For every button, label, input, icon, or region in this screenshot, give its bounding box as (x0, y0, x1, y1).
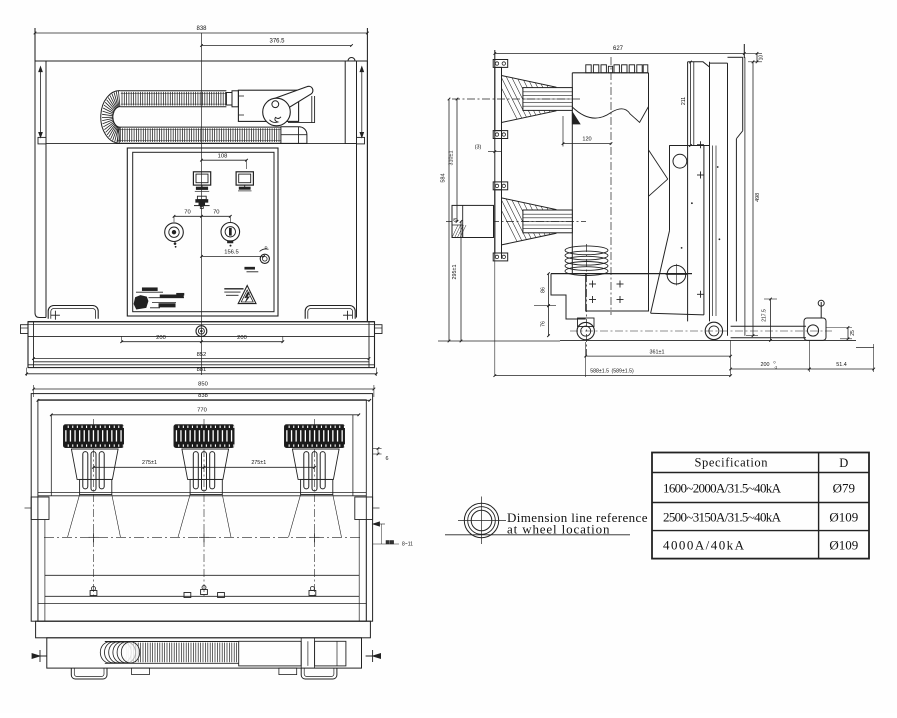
svg-text:120: 120 (582, 137, 591, 143)
svg-text:4000A/40kA: 4000A/40kA (663, 537, 745, 552)
svg-text:275±1: 275±1 (142, 460, 157, 466)
svg-text:6: 6 (386, 456, 389, 462)
svg-text:881: 881 (197, 367, 207, 373)
svg-text:770: 770 (197, 408, 207, 414)
svg-text:156.5: 156.5 (224, 249, 239, 255)
svg-text:51.4: 51.4 (836, 362, 847, 368)
svg-text:588±1.5 (589±1.5): 588±1.5 (589±1.5) (590, 368, 634, 374)
svg-text:8~11: 8~11 (402, 541, 413, 547)
svg-text:76: 76 (540, 321, 546, 327)
svg-text:86: 86 (540, 287, 546, 293)
svg-text:211: 211 (681, 97, 687, 105)
svg-text:200: 200 (761, 362, 770, 368)
svg-text:1600~2000A/31.5~40kA: 1600~2000A/31.5~40kA (663, 480, 782, 495)
svg-text:D: D (839, 456, 848, 470)
svg-text:Specification: Specification (695, 456, 769, 470)
svg-text:108: 108 (218, 154, 228, 160)
svg-text:Ø79: Ø79 (833, 480, 855, 495)
svg-text:852: 852 (197, 352, 207, 358)
svg-text:P: P (264, 246, 267, 251)
svg-text:(3): (3) (475, 144, 482, 150)
svg-text:217.5: 217.5 (761, 309, 767, 322)
svg-text:Ø109: Ø109 (829, 509, 858, 524)
svg-text:627: 627 (613, 46, 624, 52)
svg-text:584: 584 (441, 173, 447, 182)
svg-text:70: 70 (213, 209, 219, 215)
svg-text:25: 25 (850, 330, 856, 336)
svg-text:2500~3150A/31.5~40kA: 2500~3150A/31.5~40kA (663, 509, 782, 524)
svg-text:0: 0 (774, 361, 776, 365)
svg-text:361±1: 361±1 (650, 349, 665, 355)
svg-text:at wheel location: at wheel location (507, 522, 610, 537)
svg-text:Ø109: Ø109 (829, 537, 858, 552)
svg-text:200: 200 (237, 335, 247, 341)
svg-text:200: 200 (156, 335, 166, 341)
svg-text:295±1: 295±1 (452, 265, 458, 280)
svg-text:376.5: 376.5 (269, 39, 285, 45)
svg-text:-3: -3 (774, 366, 777, 370)
svg-text:70: 70 (184, 209, 190, 215)
svg-text:850: 850 (198, 382, 208, 388)
svg-text:10: 10 (759, 55, 765, 61)
svg-text:310±1: 310±1 (448, 151, 454, 166)
svg-text:275±1: 275±1 (251, 460, 266, 466)
svg-text:838: 838 (196, 26, 207, 32)
svg-text:498: 498 (755, 193, 761, 202)
